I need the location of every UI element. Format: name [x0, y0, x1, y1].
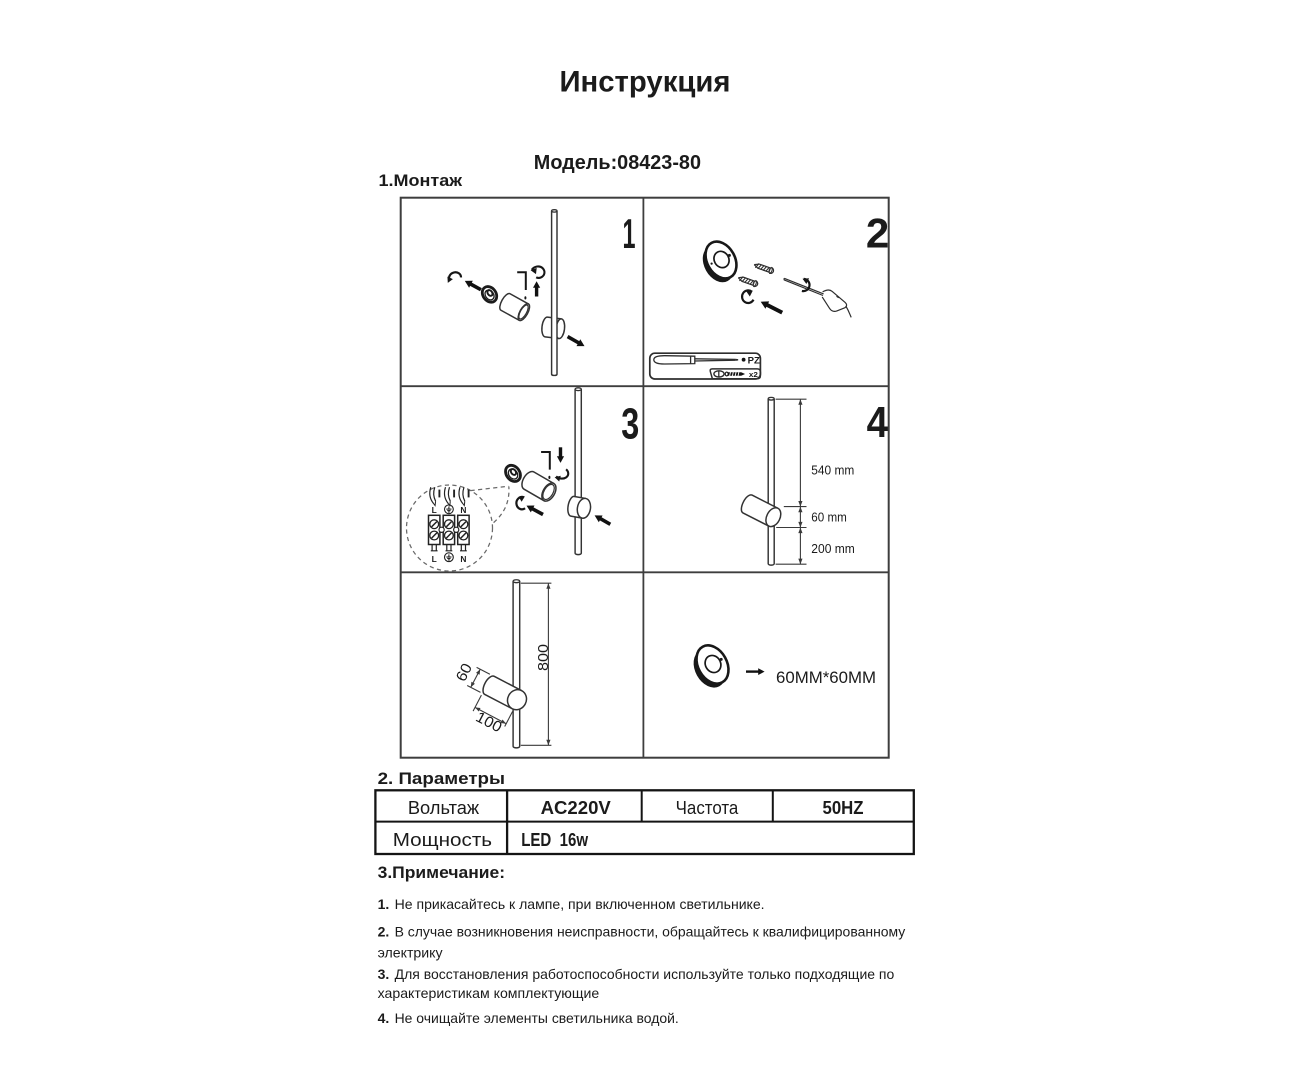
svg-text:50HZ: 50HZ: [823, 797, 864, 818]
svg-text:x2: x2: [749, 370, 758, 379]
svg-text:L: L: [432, 505, 437, 515]
svg-text:PZ: PZ: [748, 355, 760, 366]
svg-text:200 mm: 200 mm: [811, 541, 855, 556]
svg-text:Не очищайте элементы светильни: Не очищайте элементы светильника водой.: [395, 1010, 679, 1026]
svg-text:540 mm: 540 mm: [811, 463, 854, 478]
svg-text:1: 1: [623, 210, 636, 257]
svg-text:N: N: [460, 554, 466, 564]
svg-text:L: L: [432, 554, 437, 564]
svg-text:3.Примечание:: 3.Примечание:: [378, 863, 506, 882]
svg-text:4.: 4.: [378, 1010, 390, 1026]
svg-text:характеристикам комплектующие: характеристикам комплектующие: [378, 985, 600, 1001]
svg-text:2. Параметры: 2. Параметры: [378, 769, 505, 788]
svg-text:4: 4: [867, 398, 889, 447]
svg-text:800: 800: [535, 644, 552, 671]
svg-text:В случае возникновения неиспра: В случае возникновения неисправности, об…: [395, 923, 906, 939]
svg-text:Не прикасайтесь к лампе, при в: Не прикасайтесь к лампе, при включенном …: [395, 896, 765, 912]
svg-text:2.: 2.: [378, 923, 390, 939]
svg-text:LED 16w: LED 16w: [521, 829, 588, 850]
svg-text:Модель:08423-80: Модель:08423-80: [534, 152, 701, 174]
svg-text:Инструкция: Инструкция: [560, 66, 731, 99]
svg-text:электрику: электрику: [378, 944, 443, 960]
svg-text:60 mm: 60 mm: [811, 509, 847, 524]
svg-text:2: 2: [866, 210, 889, 257]
svg-text:1.: 1.: [378, 896, 390, 912]
svg-text:1.Монтаж: 1.Монтаж: [379, 171, 463, 190]
svg-text:AC220V: AC220V: [541, 797, 612, 818]
svg-text:Частота: Частота: [676, 797, 739, 818]
svg-text:60MM*60MM: 60MM*60MM: [776, 668, 876, 687]
svg-text:Мощность: Мощность: [393, 829, 492, 850]
svg-text:N: N: [460, 505, 466, 515]
svg-text:3: 3: [621, 400, 639, 449]
svg-text:Вольтаж: Вольтаж: [408, 797, 480, 818]
svg-text:Для восстановления работоспосо: Для восстановления работоспособности исп…: [395, 966, 895, 982]
svg-text:3.: 3.: [378, 966, 390, 982]
